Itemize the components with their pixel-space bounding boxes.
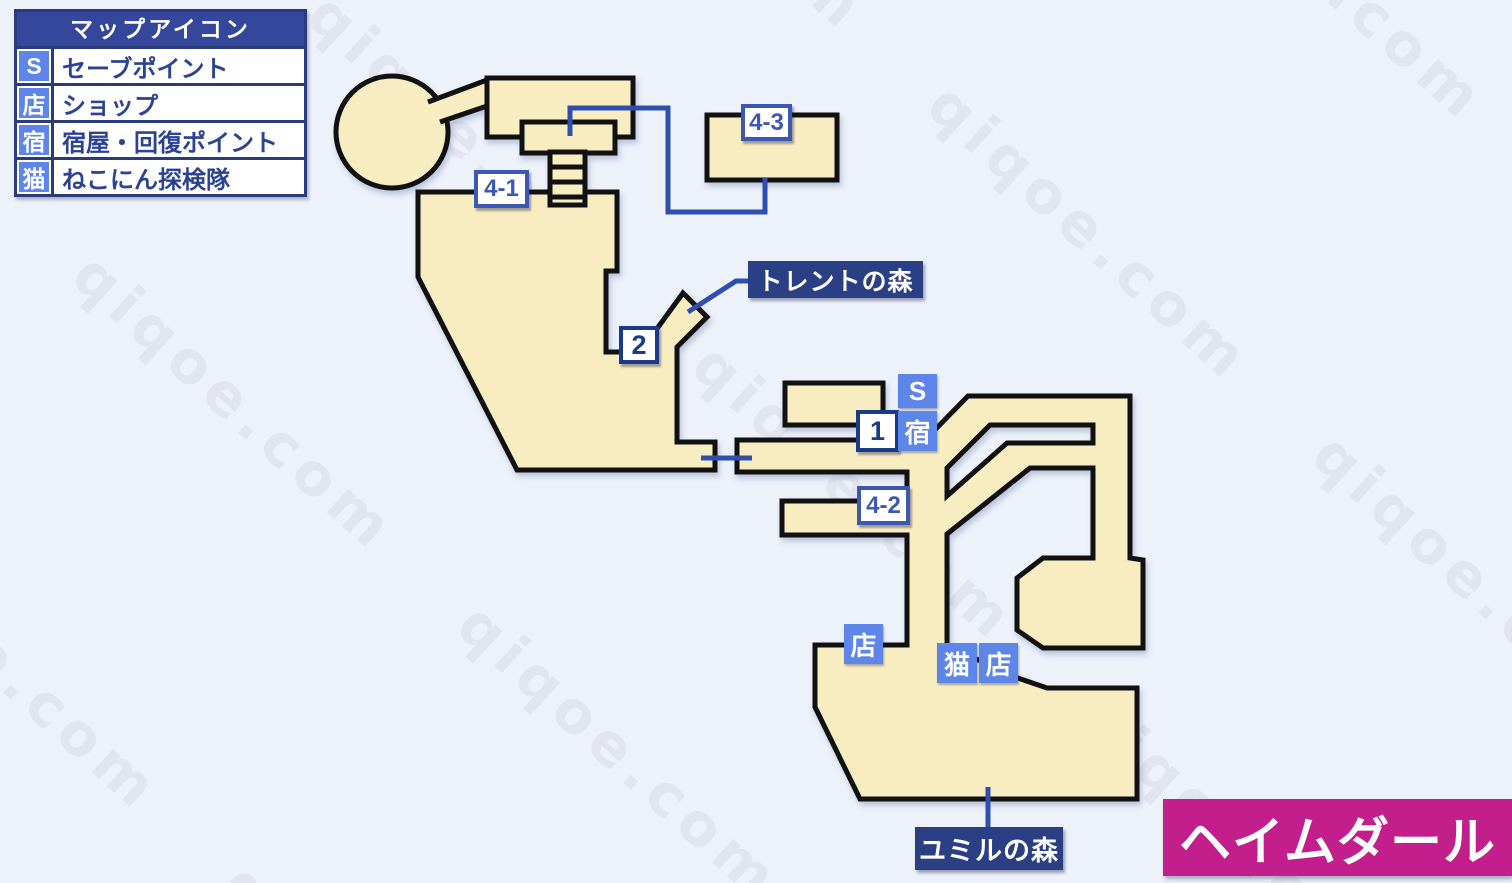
save-point-icon: S bbox=[17, 49, 51, 83]
legend-title: マップアイコン bbox=[17, 12, 304, 46]
map-area-east-town bbox=[737, 396, 1143, 799]
marker-1: 1 bbox=[856, 410, 899, 452]
cat-team-icon: 猫 bbox=[17, 160, 51, 194]
map-area-circle-plaza bbox=[336, 76, 448, 188]
inn-badge: 宿 bbox=[898, 411, 937, 451]
legend-label-save: セーブポイント bbox=[54, 49, 304, 83]
shop-badge-east: 店 bbox=[979, 643, 1018, 683]
shop-badge-west: 店 bbox=[844, 624, 883, 664]
map-page: qiqoe.com qiqoe.com qiqoe.com qiqoe.com … bbox=[0, 0, 1512, 883]
save-point-badge: S bbox=[898, 374, 937, 408]
map-area-west-district bbox=[418, 192, 715, 470]
route-to-trent-forest bbox=[688, 281, 749, 312]
marker-4-2: 4-2 bbox=[857, 486, 910, 525]
legend-row-inn: 宿 宿屋・回復ポイント bbox=[17, 123, 304, 157]
legend-row-save: S セーブポイント bbox=[17, 49, 304, 83]
legend-label-shop: ショップ bbox=[54, 86, 304, 120]
legend-label-cat: ねこにん探検隊 bbox=[54, 160, 304, 194]
cat-team-badge: 猫 bbox=[937, 643, 977, 683]
area-label-yumir-forest: ユミルの森 bbox=[915, 827, 1063, 870]
legend-row-shop: 店 ショップ bbox=[17, 86, 304, 120]
map-title-banner: ヘイムダール bbox=[1163, 799, 1512, 876]
legend-label-inn: 宿屋・回復ポイント bbox=[54, 123, 304, 157]
marker-2: 2 bbox=[619, 326, 659, 364]
legend: マップアイコン S セーブポイント 店 ショップ 宿 宿屋・回復ポイント 猫 ね… bbox=[14, 9, 307, 197]
marker-4-3: 4-3 bbox=[741, 104, 792, 141]
inn-icon: 宿 bbox=[17, 123, 51, 157]
legend-row-cat: 猫 ねこにん探検隊 bbox=[17, 160, 304, 194]
marker-4-1: 4-1 bbox=[474, 170, 529, 208]
shop-icon: 店 bbox=[17, 86, 51, 120]
map-shapes bbox=[336, 76, 1143, 799]
area-label-trent-forest: トレントの森 bbox=[748, 261, 923, 298]
